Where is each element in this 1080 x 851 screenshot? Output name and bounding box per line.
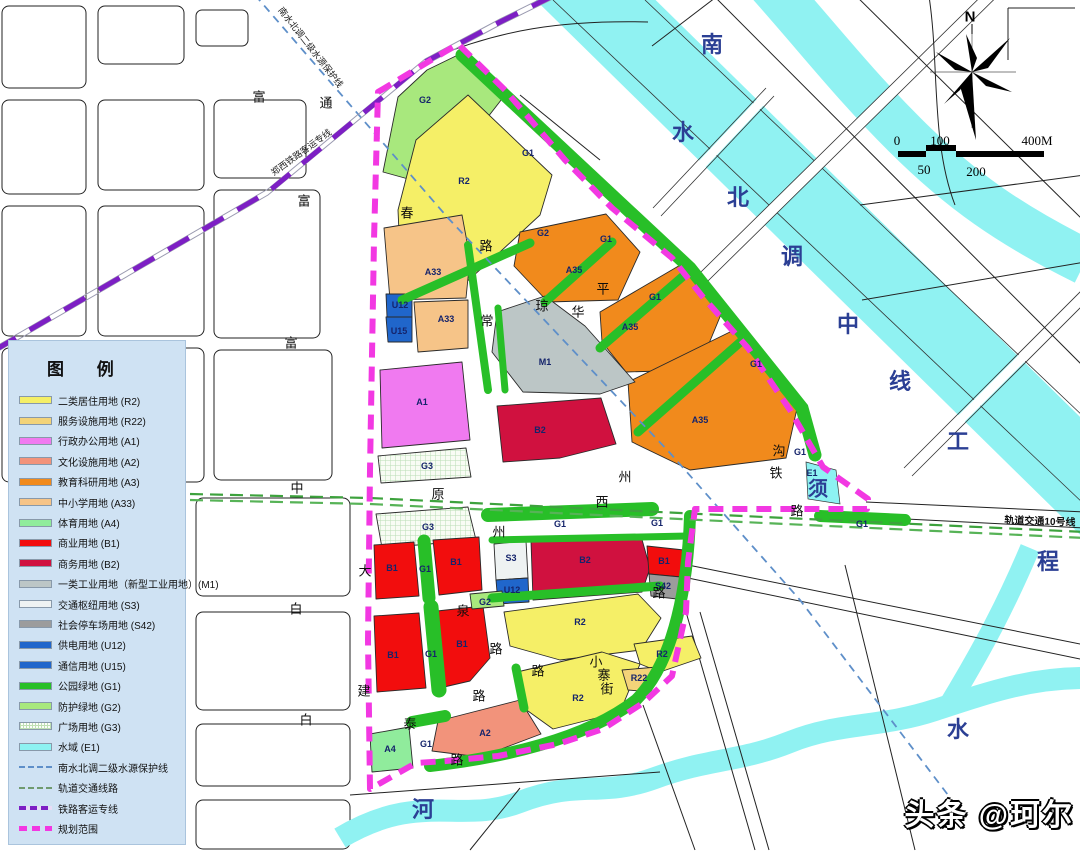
legend-label: 轨道交通线路 [58, 780, 118, 795]
legend-item: 服务设施用地 (R22) [19, 410, 185, 430]
legend-item: 铁路客运专线 [19, 798, 185, 818]
legend-label: 一类工业用地（新型工业用地）(M1) [58, 576, 219, 591]
legend-swatch [19, 722, 52, 730]
legend-swatch [19, 417, 52, 425]
legend-swatch [19, 682, 52, 690]
legend-label: 体育用地 (A4) [58, 515, 120, 530]
legend-item: 二类居住用地 (R2) [19, 390, 185, 410]
legend-swatch [19, 787, 52, 789]
legend-item: 公园绿地 (G1) [19, 675, 185, 695]
scalebar-0: 0 [894, 133, 901, 149]
legend-label: 中小学用地 (A33) [58, 495, 135, 510]
legend-item: 教育科研用地 (A3) [19, 472, 185, 492]
legend-swatch [19, 396, 52, 404]
scalebar-200: 200 [966, 164, 986, 180]
legend-swatch [19, 580, 52, 588]
legend-swatch [19, 702, 52, 710]
scalebar-100: 100 [930, 133, 950, 149]
watermark: 头条 @珂尔 [904, 790, 1074, 834]
legend-item: 社会停车场用地 (S42) [19, 614, 185, 634]
legend-swatch [19, 437, 52, 445]
legend-swatch [19, 559, 52, 567]
legend-label: 教育科研用地 (A3) [58, 474, 140, 489]
legend-item: 商业用地 (B1) [19, 533, 185, 553]
legend-item: 行政办公用地 (A1) [19, 431, 185, 451]
planning-map-page: G2G1R2G2G1A35A33U12U15A33G1A35M1A1B2A35G… [0, 0, 1080, 851]
legend-swatch [19, 806, 52, 810]
legend-label: 铁路客运专线 [58, 801, 118, 816]
legend-swatch [19, 661, 52, 669]
legend-swatch [19, 641, 52, 649]
legend-item: 广场用地 (G3) [19, 716, 185, 736]
legend-label: 供电用地 (U12) [58, 637, 126, 652]
legend-item: 南水北调二级水源保护线 [19, 757, 185, 777]
legend-swatch [19, 620, 52, 628]
legend-swatch [19, 826, 52, 831]
legend-label: 服务设施用地 (R22) [58, 413, 146, 428]
legend-swatch [19, 498, 52, 506]
legend-label: 广场用地 (G3) [58, 719, 121, 734]
legend-item: 文化设施用地 (A2) [19, 451, 185, 471]
legend-label: 南水北调二级水源保护线 [58, 760, 168, 775]
legend-label: 交通枢纽用地 (S3) [58, 597, 140, 612]
legend-item: 防护绿地 (G2) [19, 696, 185, 716]
legend-item: 中小学用地 (A33) [19, 492, 185, 512]
legend-item: 规划范围 [19, 818, 185, 838]
legend-swatch [19, 457, 52, 465]
legend-swatch [19, 766, 52, 768]
legend-panel: 图 例 二类居住用地 (R2)服务设施用地 (R22)行政办公用地 (A1)文化… [8, 340, 186, 845]
legend-label: 公园绿地 (G1) [58, 678, 121, 693]
legend-swatch [19, 539, 52, 547]
legend-swatch [19, 478, 52, 486]
north-label: N [965, 9, 976, 26]
legend-label: 行政办公用地 (A1) [58, 433, 140, 448]
legend-swatch [19, 600, 52, 608]
legend-item: 轨道交通线路 [19, 777, 185, 797]
legend-swatch [19, 743, 52, 751]
legend-label: 二类居住用地 (R2) [58, 393, 140, 408]
scalebar-50: 50 [918, 162, 931, 178]
legend-label: 社会停车场用地 (S42) [58, 617, 155, 632]
legend-label: 通信用地 (U15) [58, 658, 126, 673]
legend-item: 交通枢纽用地 (S3) [19, 594, 185, 614]
legend-item: 通信用地 (U15) [19, 655, 185, 675]
legend-item: 供电用地 (U12) [19, 635, 185, 655]
legend-label: 商务用地 (B2) [58, 556, 120, 571]
legend-item: 体育用地 (A4) [19, 512, 185, 532]
legend-label: 文化设施用地 (A2) [58, 454, 140, 469]
legend-label: 防护绿地 (G2) [58, 699, 121, 714]
legend-title: 图 例 [47, 355, 185, 380]
legend-items: 二类居住用地 (R2)服务设施用地 (R22)行政办公用地 (A1)文化设施用地… [19, 390, 185, 839]
scalebar-400m: 400M [1021, 133, 1052, 149]
legend-item: 商务用地 (B2) [19, 553, 185, 573]
legend-label: 规划范围 [58, 821, 98, 836]
legend-item: 一类工业用地（新型工业用地）(M1) [19, 574, 185, 594]
legend-swatch [19, 519, 52, 527]
legend-item: 水域 (E1) [19, 737, 185, 757]
legend-label: 商业用地 (B1) [58, 535, 120, 550]
legend-label: 水域 (E1) [58, 739, 100, 754]
